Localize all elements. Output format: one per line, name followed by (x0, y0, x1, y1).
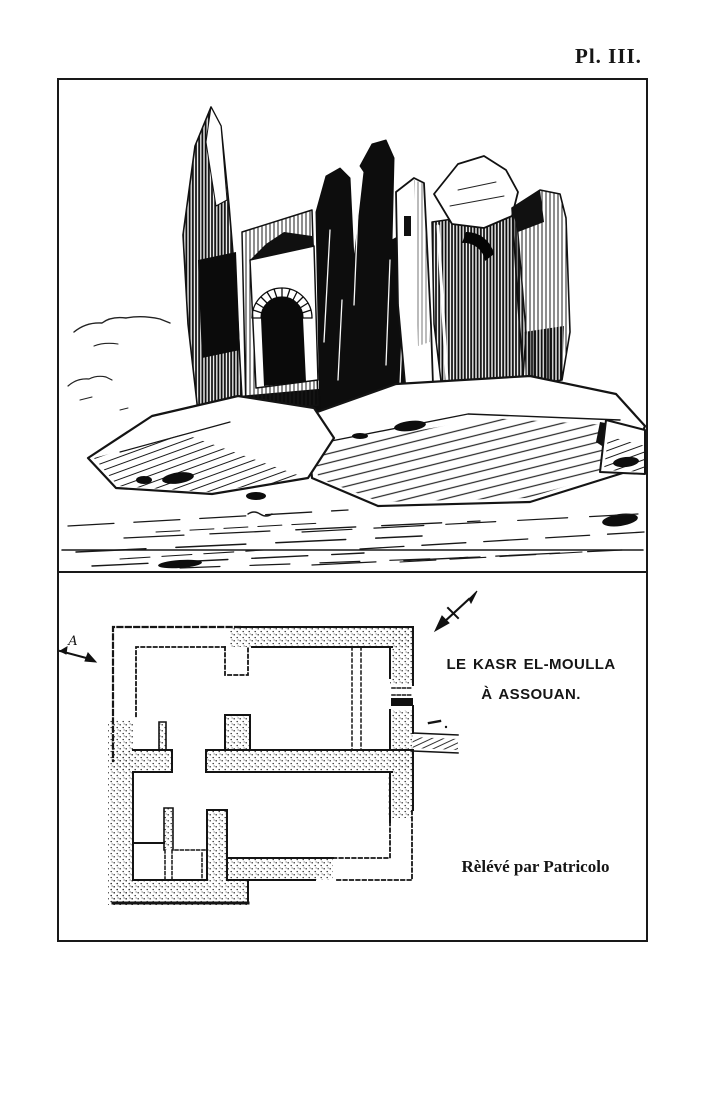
rock-outcrop (88, 376, 645, 528)
plan-credit: Rèlévé par Patricolo (443, 857, 628, 877)
central-wall (206, 750, 413, 772)
section-arrow-icon (60, 647, 96, 662)
plate-label: Pl. III. (575, 44, 642, 69)
arch-opening (261, 297, 306, 386)
scanned-plate-page: Pl. III. (0, 0, 720, 1094)
plan-panel: A LE KASR EL-MOULLA À ASSOUAN. Rèlévé pa… (59, 573, 646, 940)
lower-pier (207, 810, 227, 880)
right-wall-lower (388, 772, 413, 818)
arched-doorway-wall (242, 210, 318, 412)
plan-title: LE KASR EL-MOULLA À ASSOUAN. (445, 650, 617, 710)
plate-frame: A LE KASR EL-MOULLA À ASSOUAN. Rèlévé pa… (57, 78, 648, 942)
right-wall-upper (390, 627, 413, 685)
dashed-niche (225, 647, 248, 675)
dashed-southeast-corner (333, 818, 390, 858)
lower-cross-wall (227, 858, 333, 880)
top-wall (230, 627, 413, 647)
water-channel-hatch (413, 737, 458, 750)
bottom-wall (110, 880, 248, 905)
thin-pier (159, 722, 166, 750)
door-lintel-bar (391, 698, 413, 706)
clouds (68, 317, 170, 410)
window-slit (404, 216, 411, 236)
illustration-panel (59, 80, 646, 571)
plan-masonry-walls (108, 627, 413, 905)
section-marker-label: A (67, 634, 77, 649)
plan-title-line2: À ASSOUAN. (445, 680, 617, 710)
north-arrow-icon (435, 591, 477, 631)
inner-dashed-outline (136, 647, 225, 718)
central-pier (225, 715, 250, 750)
floor-plan: A (59, 573, 646, 940)
ground-hatching (62, 510, 644, 570)
ruins-illustration (59, 80, 646, 571)
right-ruin-mass (432, 156, 526, 406)
left-ruin-spire (183, 107, 246, 420)
small-stub-wall (164, 808, 173, 850)
left-wall (108, 720, 133, 905)
channel-end-dot (445, 726, 447, 728)
plan-title-line1: LE KASR EL-MOULLA (445, 650, 617, 680)
